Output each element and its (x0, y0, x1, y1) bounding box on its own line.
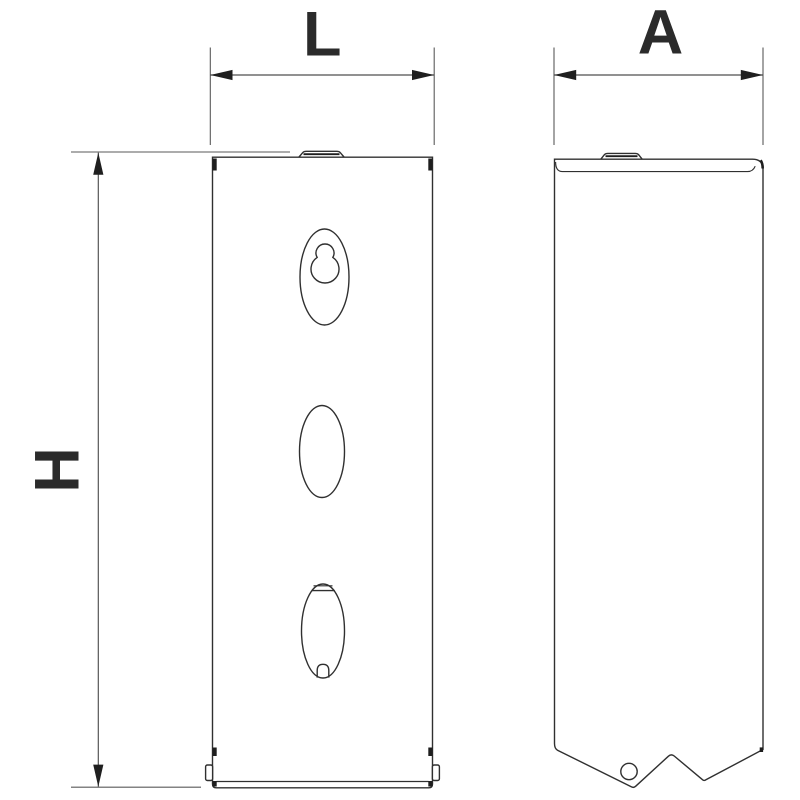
height-label: H (23, 447, 93, 493)
side-corner-mark-top-right (761, 160, 763, 168)
dispenser-dimension-drawing: L A H (0, 0, 800, 800)
technical-drawing-canvas: L A H (0, 0, 800, 800)
side-view (555, 153, 764, 787)
length-label: L (303, 0, 341, 70)
arrowhead-depth-left (554, 70, 576, 80)
front-side-clip-right (432, 765, 439, 781)
side-body-outline (555, 159, 764, 787)
arrowhead-length-left (210, 70, 232, 80)
dimension-depth: A (554, 0, 763, 145)
front-view (206, 151, 440, 788)
dimension-height: H (23, 152, 291, 787)
side-top-fold-line (556, 162, 756, 172)
front-side-clip-left (206, 765, 213, 781)
dimension-length: L (210, 0, 434, 145)
middle-oval-cutout (300, 406, 345, 498)
side-bottom-hole (621, 763, 637, 779)
arrowhead-height-top (93, 153, 103, 175)
arrowhead-length-right (412, 70, 434, 80)
arrowhead-height-bottom (93, 765, 103, 787)
depth-label: A (638, 0, 684, 68)
arrowhead-depth-right (741, 70, 763, 80)
